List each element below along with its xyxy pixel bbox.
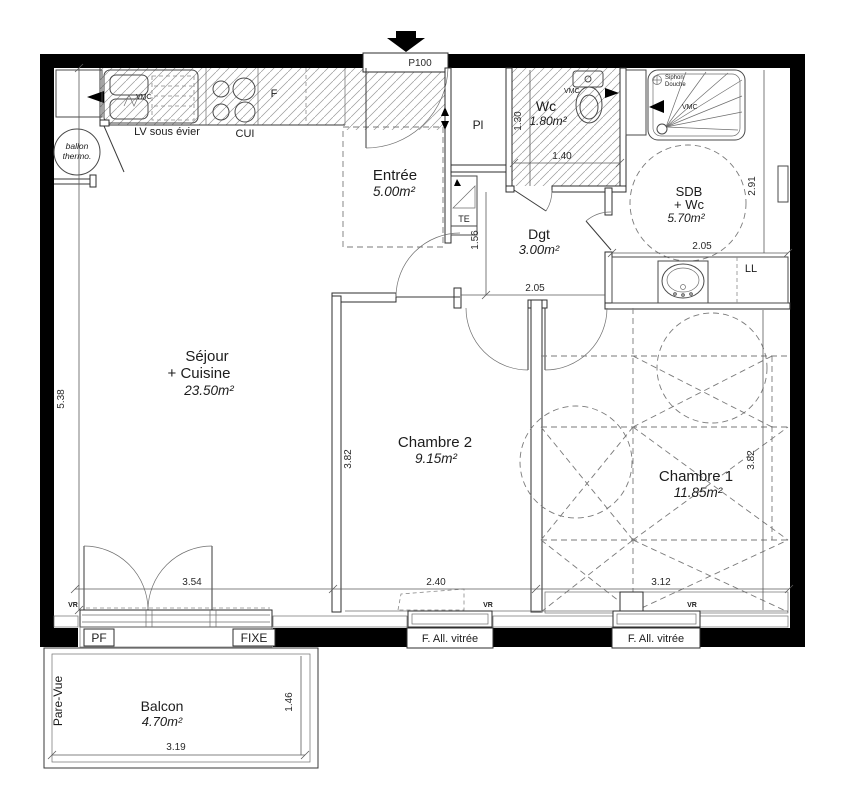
duct-column: [626, 70, 646, 135]
dim-wc-w: 1.40: [552, 151, 572, 162]
vr-label-1: VR: [68, 602, 78, 609]
dgt-area: 3.00m²: [519, 242, 560, 257]
sejour-name2: + Cuisine: [168, 365, 231, 382]
wall-wc-south-east: [552, 186, 626, 192]
wall-chambre2-chambre1: [531, 300, 542, 612]
dim-ch2-w: 2.40: [426, 577, 446, 588]
chambre1-area: 11.85m²: [674, 485, 723, 500]
wall-wc-south-west: [506, 186, 514, 192]
chambre2-window: F. All. vitrée: [407, 611, 493, 648]
entrance-door-opening: [363, 53, 448, 72]
wc-name: Wc: [536, 98, 556, 114]
south-facade: PF FIXE F. All. vitrée F. All. vitrée VR…: [54, 592, 788, 648]
vmc-label-sdb: VMC: [682, 104, 698, 111]
ballon-label-2: thermo.: [63, 151, 92, 161]
chambre2-window-label: F. All. vitrée: [422, 633, 478, 645]
ballon-label-1: ballon: [66, 141, 89, 151]
bottom-wall-1: [40, 628, 78, 647]
washbasin-icon: [662, 264, 704, 298]
cui-label: CUI: [236, 128, 255, 140]
dim-sejour-w: 3.54: [182, 577, 202, 588]
dim-ch1-w: 3.12: [651, 577, 671, 588]
dim-sdb-w: 2.05: [692, 241, 712, 252]
dim-balcon-w: 3.19: [166, 742, 186, 753]
entrance-marker: P100: [363, 31, 448, 72]
chambre2-room: Chambre 2 9.15m²: [398, 308, 528, 610]
dimension-annotations: 5.38 3.54 2.40 3.12 1.40 1.30 1.56 2.05 …: [48, 64, 793, 759]
pf-label: PF: [91, 631, 106, 645]
dim-sejour-h: 5.38: [56, 389, 67, 409]
sejour-room: Séjour + Cuisine 23.50m²: [84, 348, 270, 610]
wall-dgt-sdb-south: [605, 252, 612, 308]
vmc-arrow-sdb-icon: [649, 100, 664, 113]
sdb-window: [778, 166, 788, 202]
washing-machine-label: LL: [745, 263, 757, 275]
electrical-panel-icon: TE: [451, 176, 477, 235]
entree-area: 5.00m²: [373, 184, 416, 199]
chambre1-window-frame: [613, 611, 700, 627]
wall-placard-bottom: [451, 165, 506, 172]
sdb-door-leaf: [586, 221, 611, 250]
siphon-icon: [653, 76, 662, 85]
wall-dgt-west-jamb: [454, 288, 461, 308]
sill-strip-1: [54, 616, 78, 627]
closet-door-leaf: [104, 126, 124, 172]
wc-area: 1.80m²: [529, 114, 567, 128]
window-projection-dashed: [398, 589, 464, 610]
sill-strip-3: [493, 616, 613, 627]
balcon-area: 4.70m²: [142, 714, 183, 729]
sejour-window-frame: [80, 610, 272, 627]
te-label: TE: [458, 214, 470, 224]
wall-wc-sdb: [620, 68, 626, 192]
chambre2-area: 9.15m²: [415, 451, 458, 466]
closet-jamb-top: [100, 120, 109, 126]
wall-placard-wc: [506, 68, 512, 192]
vestibule-floor-hatch: [345, 68, 445, 130]
te-triangle: [453, 186, 475, 208]
wall-sejour-chambre2: [332, 296, 341, 612]
fridge-label: F: [271, 88, 278, 100]
te-arrow-icon: [454, 179, 461, 186]
wc-door-leaf: [514, 190, 546, 211]
left-wall: [40, 54, 54, 647]
vmc-arrow-kitchen-icon: [87, 91, 104, 103]
exterior-walls: [40, 54, 805, 647]
chambre1-window: F. All. vitrée: [612, 611, 700, 648]
entrance-door-code: P100: [408, 58, 432, 69]
vanity-area: LL: [612, 257, 788, 303]
chambre1-window-label: F. All. vitrée: [628, 633, 684, 645]
dim-dgt-w: 2.05: [525, 283, 545, 294]
balcony-french-door: [84, 546, 270, 610]
chambre2-window-frame: [408, 611, 492, 627]
sill-strip-4: [700, 616, 788, 627]
sejour-area: 23.50m²: [183, 383, 234, 398]
entree-name: Entrée: [373, 167, 417, 184]
dim-wc-h: 1.30: [513, 111, 524, 131]
wall-dgt-sdb-north: [605, 188, 612, 215]
dim-ch2-h: 3.82: [343, 449, 354, 469]
shower-drain: [657, 124, 667, 134]
floor-plan-page: P100: [0, 0, 862, 800]
pare-vue-label: Pare-Vue: [51, 676, 65, 727]
top-wall-right: [448, 54, 805, 68]
siphon-label-2: Douche: [665, 82, 686, 88]
top-wall-left: [40, 54, 363, 68]
sdb-area: 5.70m²: [667, 211, 705, 225]
dgt-name: Dgt: [528, 226, 550, 242]
bottom-wall-2: [273, 628, 407, 647]
chambre1-door-arc: [545, 308, 607, 370]
floor-plan-drawing: P100: [0, 0, 862, 800]
wall-entree-placard: [445, 68, 451, 243]
balcon-name: Balcon: [141, 698, 184, 714]
placard-te-area: Pl TE: [451, 118, 483, 235]
dim-balcon-h: 1.46: [284, 692, 295, 712]
sdb-name2: + Wc: [674, 197, 704, 212]
vmc-label-wc: VMC: [564, 88, 580, 95]
right-wall: [790, 54, 805, 647]
bottom-wall-4: [700, 628, 805, 647]
bottom-wall-3: [493, 628, 613, 647]
sill-strip-2: [273, 616, 407, 627]
dim-sdb-h: 2.91: [747, 176, 758, 196]
chambre1-name: Chambre 1: [659, 468, 733, 485]
chambre2-name: Chambre 2: [398, 434, 472, 451]
chambre2-door-arc: [466, 308, 528, 370]
fixe-label: FIXE: [241, 631, 268, 645]
sejour-window: PF FIXE: [80, 610, 275, 647]
entrance-arrow-icon: [387, 31, 425, 52]
wall-sejour-dgt: [332, 293, 396, 302]
placard-label: Pl: [473, 118, 484, 132]
sejour-name: Séjour: [185, 348, 228, 365]
dim-ch1-h: 3.82: [746, 450, 757, 470]
dim-dgt-h: 1.56: [470, 230, 481, 250]
siphon-label-1: Siphon: [665, 75, 684, 81]
wc-door-arc: [546, 190, 552, 211]
vanity-counter: [612, 257, 788, 303]
closet-jamb-bottom: [90, 175, 96, 187]
vmc-label-kitchen: VMC: [136, 94, 152, 101]
vr-label-2: VR: [483, 602, 493, 609]
vr-label-3: VR: [687, 602, 697, 609]
lv-sous-evier-label: LV sous évier: [134, 126, 200, 138]
